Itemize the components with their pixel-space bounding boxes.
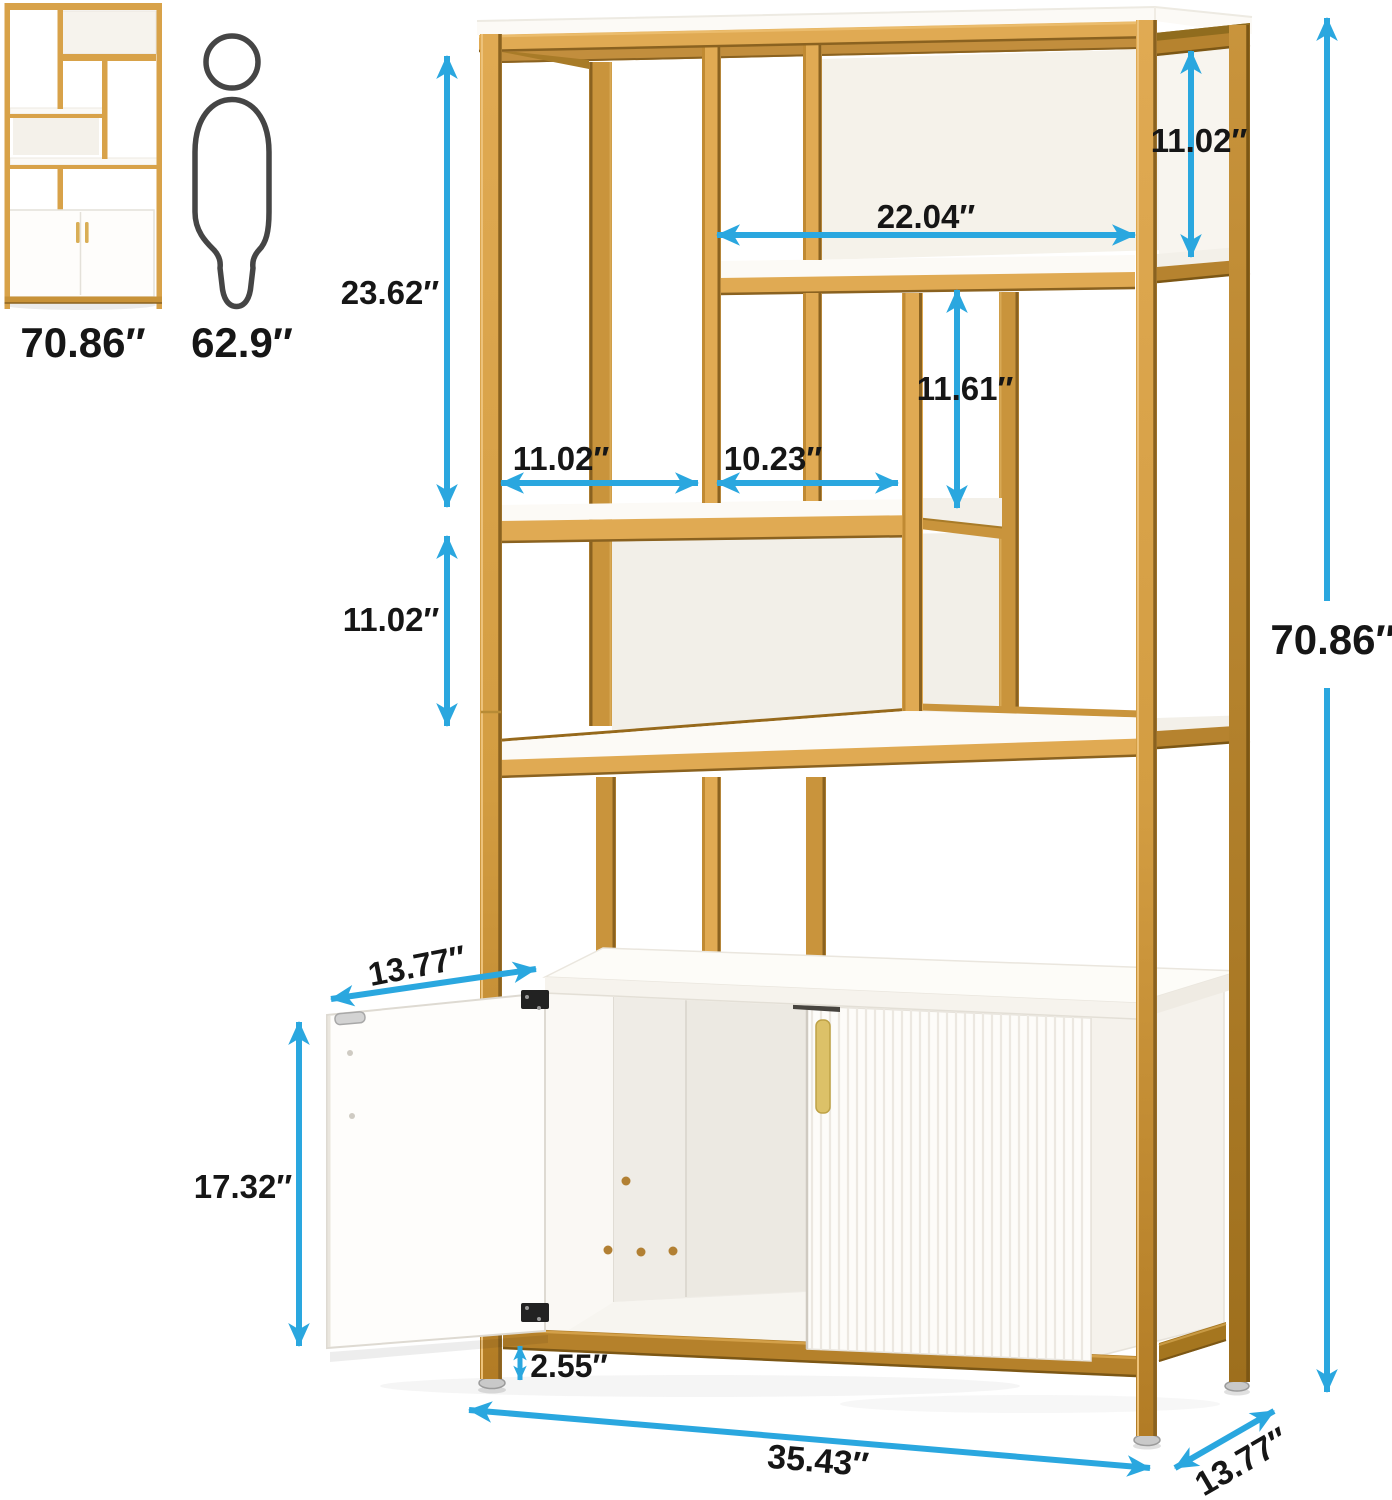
svg-text:62.9″: 62.9″ (191, 319, 293, 366)
svg-text:23.62″: 23.62″ (341, 274, 440, 311)
svg-text:11.02″: 11.02″ (343, 601, 440, 638)
svg-text:11.61″: 11.61″ (917, 370, 1014, 407)
svg-text:70.86″: 70.86″ (20, 319, 145, 366)
svg-text:11.02″: 11.02″ (513, 440, 610, 477)
svg-text:70.86″: 70.86″ (1270, 616, 1392, 663)
svg-text:10.23″: 10.23″ (724, 440, 823, 477)
svg-text:11.02″: 11.02″ (1151, 122, 1248, 159)
svg-text:22.04″: 22.04″ (877, 198, 976, 235)
svg-text:17.32″: 17.32″ (194, 1168, 293, 1205)
svg-text:2.55″: 2.55″ (530, 1348, 608, 1384)
